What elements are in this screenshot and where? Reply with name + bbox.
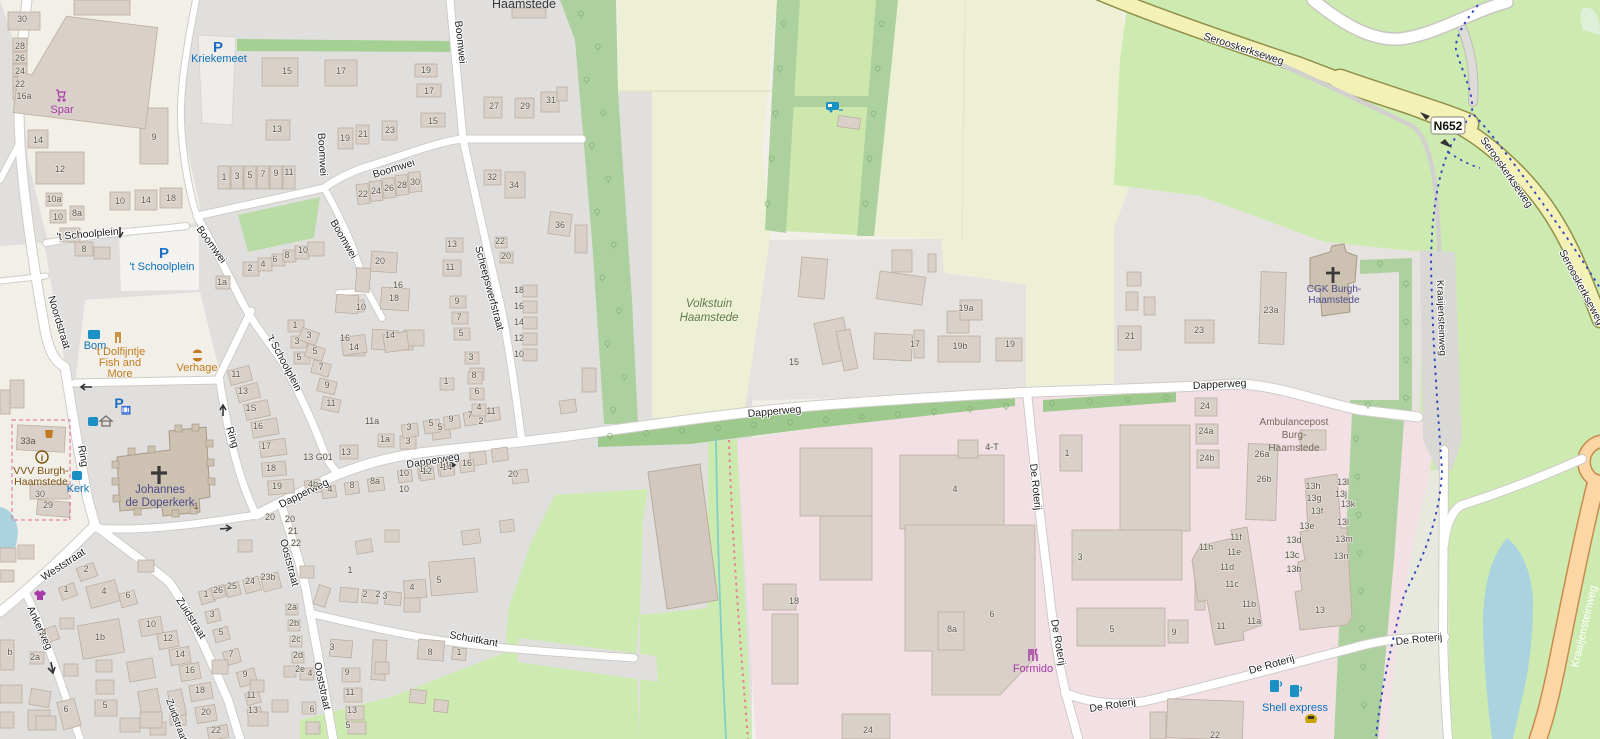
svg-text:Burg-: Burg- [1282, 430, 1306, 441]
svg-text:1S: 1S [245, 403, 256, 413]
svg-text:30: 30 [410, 177, 420, 187]
svg-text:11: 11 [445, 262, 454, 272]
svg-text:Haamstede: Haamstede [14, 476, 68, 488]
svg-text:20: 20 [201, 707, 211, 717]
svg-text:14: 14 [141, 195, 151, 205]
svg-text:2a: 2a [30, 652, 40, 662]
svg-text:28: 28 [397, 180, 407, 190]
svg-text:16: 16 [462, 458, 472, 468]
svg-text:13d: 13d [1286, 535, 1301, 545]
svg-text:1: 1 [347, 565, 352, 575]
svg-text:9: 9 [454, 296, 459, 306]
svg-text:5: 5 [1109, 624, 1114, 634]
svg-text:12: 12 [514, 333, 524, 343]
svg-text:14: 14 [514, 317, 524, 327]
svg-text:2e: 2e [295, 664, 305, 674]
svg-text:5: 5 [436, 575, 441, 585]
svg-text:20: 20 [508, 469, 518, 479]
svg-text:1: 1 [221, 172, 226, 182]
svg-text:2b: 2b [289, 618, 299, 628]
svg-text:21: 21 [288, 526, 298, 536]
svg-text:13h: 13h [1305, 481, 1320, 491]
svg-text:4: 4 [409, 582, 414, 592]
svg-text:Haamstede: Haamstede [680, 312, 739, 324]
svg-text:16: 16 [514, 301, 524, 311]
svg-text:19: 19 [1005, 339, 1015, 349]
svg-text:5: 5 [102, 700, 107, 710]
svg-text:2c: 2c [291, 634, 301, 644]
svg-text:26b: 26b [1256, 474, 1271, 484]
svg-text:22: 22 [495, 236, 505, 246]
svg-text:22: 22 [358, 189, 368, 199]
svg-text:14: 14 [385, 330, 395, 340]
svg-text:18: 18 [195, 685, 205, 695]
svg-text:5: 5 [458, 328, 463, 338]
svg-text:18: 18 [789, 596, 799, 606]
svg-text:17: 17 [910, 339, 920, 349]
svg-text:13j: 13j [1335, 489, 1347, 499]
svg-text:6: 6 [272, 254, 277, 264]
svg-text:24: 24 [863, 725, 873, 735]
svg-text:11: 11 [1216, 621, 1225, 631]
svg-text:25: 25 [227, 581, 237, 591]
svg-text:19: 19 [340, 133, 350, 143]
svg-text:13: 13 [272, 124, 282, 134]
svg-text:8: 8 [81, 244, 86, 254]
svg-text:19a: 19a [958, 303, 973, 313]
svg-text:2: 2 [478, 416, 483, 426]
svg-text:2: 2 [362, 589, 367, 599]
svg-text:7: 7 [467, 410, 472, 420]
svg-text:11: 11 [231, 369, 240, 379]
svg-text:i: i [41, 453, 44, 463]
svg-text:21: 21 [1125, 331, 1135, 341]
svg-text:3: 3 [405, 436, 410, 446]
svg-text:13: 13 [238, 386, 248, 396]
svg-text:17: 17 [424, 86, 434, 96]
svg-text:7: 7 [228, 649, 233, 659]
svg-text:14: 14 [349, 342, 359, 352]
svg-text:2a: 2a [287, 602, 297, 612]
svg-text:Ambulancepost: Ambulancepost [1260, 417, 1329, 428]
svg-text:5: 5 [247, 170, 252, 180]
svg-text:24: 24 [15, 66, 25, 76]
svg-text:13: 13 [248, 705, 258, 715]
svg-text:9: 9 [324, 380, 329, 390]
svg-text:29: 29 [43, 500, 53, 510]
svg-text:14: 14 [175, 649, 185, 659]
svg-text:Boomwei: Boomwei [315, 133, 329, 177]
svg-text:P: P [159, 245, 169, 262]
svg-text:Formido: Formido [1013, 663, 1053, 675]
svg-text:2: 2 [247, 263, 252, 273]
svg-text:3: 3 [329, 642, 334, 652]
svg-text:6: 6 [309, 704, 314, 714]
svg-text:6: 6 [989, 609, 994, 619]
svg-text:11a: 11a [365, 416, 379, 426]
svg-text:15: 15 [282, 66, 292, 76]
svg-text:13: 13 [341, 447, 351, 457]
svg-text:16a: 16a [16, 91, 31, 101]
svg-text:More: More [107, 368, 132, 380]
svg-text:3: 3 [306, 330, 311, 340]
svg-text:'t Schoolplein: 't Schoolplein [129, 261, 194, 273]
svg-text:8a: 8a [72, 208, 82, 218]
svg-text:9: 9 [1171, 627, 1176, 637]
svg-text:20: 20 [285, 514, 295, 524]
svg-text:15: 15 [789, 357, 799, 367]
svg-text:10: 10 [399, 468, 409, 478]
svg-text:12: 12 [55, 164, 65, 174]
svg-text:12: 12 [422, 466, 432, 476]
svg-text:13n: 13n [1333, 551, 1348, 561]
svg-text:1b: 1b [95, 632, 105, 642]
svg-text:16: 16 [340, 333, 350, 343]
svg-text:22: 22 [291, 538, 301, 548]
svg-text:7: 7 [318, 362, 323, 372]
svg-text:27: 27 [489, 101, 499, 111]
svg-text:5: 5 [312, 346, 317, 356]
svg-text:1a: 1a [380, 434, 390, 444]
svg-text:10: 10 [399, 484, 409, 494]
svg-text:26: 26 [213, 585, 223, 595]
svg-text:18: 18 [266, 463, 276, 473]
svg-text:16: 16 [393, 280, 403, 290]
svg-text:4-T: 4-T [985, 442, 999, 452]
svg-text:1: 1 [443, 376, 448, 386]
svg-text:18: 18 [389, 293, 399, 303]
svg-text:Kerk: Kerk [67, 483, 90, 495]
svg-text:8: 8 [349, 480, 354, 490]
svg-text:20: 20 [501, 251, 511, 261]
svg-text:13g: 13g [1306, 493, 1321, 503]
svg-text:24: 24 [1200, 401, 1210, 411]
svg-text:10: 10 [298, 245, 308, 255]
svg-text:23: 23 [1194, 325, 1204, 335]
svg-text:18: 18 [166, 193, 176, 203]
svg-text:11a: 11a [1247, 616, 1261, 626]
svg-text:1: 1 [63, 584, 68, 594]
svg-text:11: 11 [326, 398, 335, 408]
svg-text:11: 11 [486, 406, 495, 416]
svg-text:11: 11 [284, 167, 293, 177]
svg-text:22: 22 [211, 725, 221, 735]
svg-text:23a: 23a [1263, 305, 1278, 315]
svg-text:14: 14 [33, 135, 43, 145]
svg-text:13c: 13c [1285, 550, 1300, 560]
svg-text:23: 23 [385, 125, 395, 135]
svg-text:20: 20 [265, 512, 275, 522]
svg-text:13m: 13m [1335, 534, 1353, 544]
svg-text:8: 8 [284, 250, 289, 260]
svg-text:17: 17 [336, 66, 346, 76]
svg-text:1: 1 [203, 589, 208, 599]
svg-text:7: 7 [260, 169, 265, 179]
svg-text:30: 30 [35, 489, 45, 499]
svg-text:13: 13 [347, 705, 357, 715]
svg-text:34: 34 [509, 180, 519, 190]
svg-text:9: 9 [242, 669, 247, 679]
svg-text:6: 6 [63, 704, 68, 714]
svg-text:17: 17 [261, 441, 271, 451]
svg-text:13k: 13k [1341, 499, 1356, 509]
svg-text:1: 1 [456, 647, 461, 657]
svg-text:2d: 2d [293, 650, 303, 660]
svg-text:Haamstede: Haamstede [492, 0, 556, 11]
svg-text:10: 10 [146, 619, 156, 629]
svg-text:13l: 13l [1337, 517, 1349, 527]
svg-text:Spar: Spar [50, 104, 74, 116]
svg-text:3: 3 [209, 609, 214, 619]
svg-text:🛄: 🛄 [121, 405, 131, 415]
svg-text:24: 24 [371, 186, 381, 196]
svg-text:31: 31 [546, 95, 556, 105]
svg-text:5: 5 [428, 418, 433, 428]
svg-text:2: 2 [375, 589, 380, 599]
svg-text:1: 1 [1064, 448, 1069, 458]
svg-text:7: 7 [456, 312, 461, 322]
svg-text:9: 9 [151, 132, 156, 142]
svg-text:3: 3 [294, 336, 299, 346]
svg-text:4: 4 [41, 627, 46, 637]
svg-text:13: 13 [1315, 605, 1325, 615]
svg-text:1a: 1a [217, 277, 227, 287]
svg-text:4: 4 [101, 586, 106, 596]
svg-text:3: 3 [234, 171, 239, 181]
svg-text:26: 26 [384, 183, 394, 193]
svg-text:9: 9 [344, 667, 349, 677]
svg-text:11h: 11h [1199, 542, 1213, 552]
svg-text:4: 4 [327, 484, 332, 494]
svg-text:5: 5 [345, 720, 350, 730]
svg-text:11: 11 [246, 690, 255, 700]
svg-text:11b: 11b [1242, 599, 1256, 609]
svg-text:8a: 8a [947, 624, 957, 634]
svg-text:19: 19 [272, 481, 282, 491]
svg-text:24: 24 [245, 576, 255, 586]
svg-text:13 G01: 13 G01 [303, 452, 333, 462]
svg-text:5: 5 [437, 422, 442, 432]
svg-text:29: 29 [520, 101, 530, 111]
svg-text:11f: 11f [1230, 532, 1242, 542]
svg-text:33a: 33a [20, 436, 35, 446]
svg-text:4: 4 [952, 484, 957, 494]
svg-text:9: 9 [448, 414, 453, 424]
svg-text:26: 26 [15, 53, 25, 63]
svg-text:10a: 10a [46, 194, 61, 204]
svg-text:12: 12 [163, 633, 173, 643]
svg-text:1: 1 [292, 320, 297, 330]
svg-text:b: b [7, 647, 12, 657]
svg-text:13e: 13e [1299, 521, 1314, 531]
svg-text:13b: 13b [1286, 564, 1301, 574]
svg-text:Shell express: Shell express [1262, 702, 1329, 714]
svg-text:11e: 11e [1227, 547, 1241, 557]
svg-text:3: 3 [406, 422, 411, 432]
svg-text:8: 8 [471, 370, 476, 380]
svg-text:19: 19 [421, 65, 431, 75]
svg-text:8: 8 [427, 647, 432, 657]
svg-text:6: 6 [125, 590, 130, 600]
svg-text:36: 36 [555, 220, 565, 230]
svg-text:11d: 11d [1220, 562, 1234, 572]
svg-text:Haamstede: Haamstede [1268, 443, 1320, 454]
svg-text:22: 22 [1210, 730, 1220, 739]
svg-text:15: 15 [428, 116, 438, 126]
svg-text:13l: 13l [1337, 477, 1349, 487]
svg-text:26a: 26a [1254, 449, 1269, 459]
svg-text:24b: 24b [1199, 453, 1214, 463]
svg-text:Haamstede: Haamstede [1308, 295, 1360, 306]
svg-text:10: 10 [53, 212, 63, 222]
svg-text:4: 4 [476, 402, 481, 412]
svg-text:11c: 11c [1225, 579, 1239, 589]
svg-text:30: 30 [17, 14, 27, 24]
svg-text:Kriekemeet: Kriekemeet [191, 53, 247, 65]
svg-text:32: 32 [487, 172, 497, 182]
svg-text:14: 14 [442, 462, 452, 472]
svg-text:5: 5 [296, 352, 301, 362]
svg-text:9: 9 [273, 168, 278, 178]
svg-text:19b: 19b [952, 341, 967, 351]
svg-text:4: 4 [307, 668, 312, 678]
svg-text:24a: 24a [1198, 426, 1213, 436]
svg-text:2: 2 [83, 564, 88, 574]
svg-text:8a: 8a [370, 476, 380, 486]
svg-text:4b: 4b [308, 479, 318, 489]
svg-text:Johannes: Johannes [135, 484, 185, 496]
svg-text:20: 20 [375, 256, 385, 266]
svg-text:4: 4 [260, 259, 265, 269]
svg-text:28: 28 [15, 41, 25, 51]
svg-text:CGK Burgh-: CGK Burgh- [1307, 284, 1361, 295]
svg-text:13: 13 [447, 239, 457, 249]
svg-text:13f: 13f [1311, 506, 1324, 516]
svg-text:22: 22 [15, 79, 25, 89]
svg-text:10: 10 [356, 302, 366, 312]
svg-text:10: 10 [514, 349, 524, 359]
svg-text:16: 16 [253, 421, 263, 431]
svg-text:16: 16 [185, 665, 195, 675]
svg-text:Volkstuin: Volkstuin [686, 298, 732, 310]
svg-text:21: 21 [358, 129, 368, 139]
svg-text:3: 3 [1077, 552, 1082, 562]
svg-text:18: 18 [514, 285, 524, 295]
svg-text:3: 3 [468, 352, 473, 362]
svg-text:Verhage: Verhage [177, 362, 218, 374]
svg-text:N652: N652 [1434, 119, 1463, 133]
svg-text:23b: 23b [260, 572, 275, 582]
svg-text:5: 5 [218, 627, 223, 637]
svg-text:11: 11 [345, 687, 354, 697]
svg-text:3: 3 [382, 591, 387, 601]
svg-text:de Doperkerk: de Doperkerk [125, 497, 194, 509]
svg-text:10: 10 [115, 196, 125, 206]
svg-text:6: 6 [474, 386, 479, 396]
